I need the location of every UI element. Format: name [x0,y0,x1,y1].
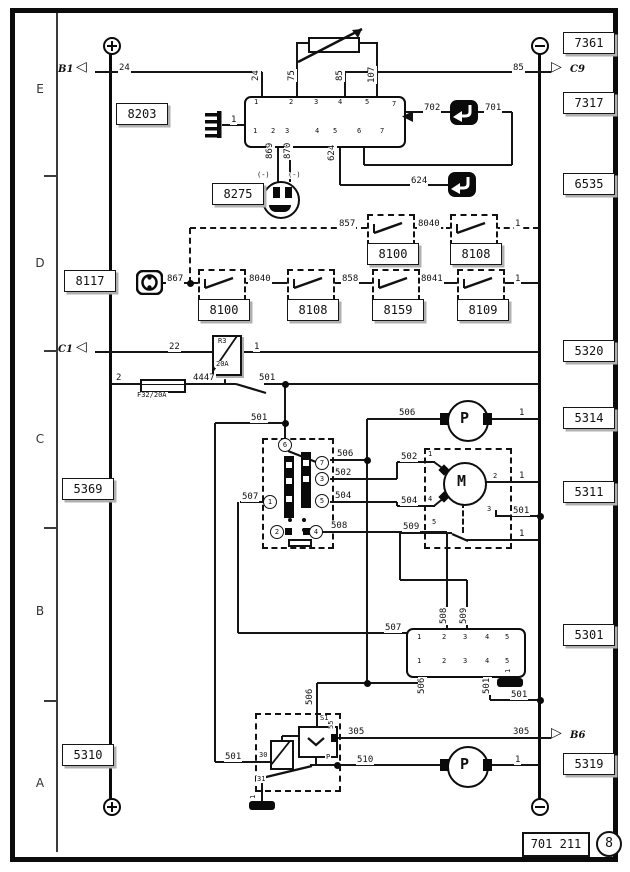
wire-label: 502 [334,469,352,478]
wire [340,184,448,186]
wire-label: 506 [336,450,354,459]
wire-label: 8040 [248,275,272,284]
component-ref-box: 5369 [62,478,114,500]
pump-terminal [440,759,449,771]
component-ref-box: 7361 [563,32,615,54]
pin-number: 4 [309,525,323,539]
ground-comb-icon [204,110,222,144]
pin-number: 1 [263,495,277,509]
wire-label: 30 [258,752,268,759]
pump-terminal [483,759,492,771]
wire-label: 2 [492,473,498,480]
wire-label: 1 [416,634,422,641]
device-8275-terminal [273,187,280,198]
device-8275-terminal [285,187,292,198]
wire [316,683,318,713]
wire-label: 702 [423,104,441,113]
wire-label: 508 [330,522,348,531]
wire-label: 3 [462,634,468,641]
margin-row-letter: B [32,604,48,618]
wire-label: 1 [514,756,521,765]
wire-label: 85 [512,64,525,73]
wire-label: 1 [518,530,525,539]
wire-label: 501 [258,374,276,383]
wire [396,502,398,506]
margin-row-letter: E [32,82,48,96]
wire-junction [282,381,289,388]
wire-junction [364,457,371,464]
wire-label: 22 [168,343,181,352]
offpage-arrow-label: C1 [58,345,73,355]
wire-label: 5 [504,658,510,665]
bus-terminal-minus-icon [531,798,549,816]
margin-row-letter: A [32,776,48,790]
component-ref-box: 5311 [563,481,615,503]
wire [367,418,448,420]
wire-label: 867 [166,275,184,284]
wire-label: M [456,474,467,489]
wire-label: 8041 [420,275,444,284]
bus-terminal-plus-icon [103,798,121,816]
right-ground-bus [538,52,541,800]
wire-label: 509 [460,607,469,625]
wire-label: 5 [504,634,510,641]
wire-label: 24 [118,64,131,73]
wire-label: 506 [418,677,427,695]
rheostat-icon [308,37,360,53]
wire [511,112,513,165]
wire-junction [187,280,194,287]
crossref-arrow-icon [450,100,478,129]
wire-label: 1 [514,275,521,284]
component-ref-box: 8108 [287,299,339,321]
wire-label: 507 [384,624,402,633]
component-ref-box: 5301 [563,624,615,646]
wire [182,383,236,385]
wire-label: 3 [284,128,290,135]
pin-number: 3 [315,472,329,486]
offpage-arrow-label: C9 [570,65,585,75]
margin-tick [44,527,57,529]
wire-label: 4 [484,658,490,665]
switch-contact [285,528,292,535]
instrument-icon [136,270,163,299]
margin-tick [44,175,57,177]
wire-label: 5 [332,128,338,135]
relay-r3-name: R3 [217,338,227,345]
component-ref-box: 6535 [563,173,615,195]
wire [214,423,216,762]
switch-symbol-8109 [457,269,505,301]
sheet-number-circle: 8 [596,831,622,857]
component-ref-box: 5310 [62,744,114,766]
dashed-wire [189,228,191,283]
wire [396,462,398,479]
wire [485,764,539,766]
wire-label: 870 [284,142,293,160]
wire-label: 501 [512,507,530,516]
wire [95,351,212,353]
wire-label: 624 [328,144,337,162]
wire-label: 31 [256,776,266,783]
wire-label: 2 [441,634,447,641]
margin-row-letter: D [32,256,48,270]
crossref-arrow-icon [448,172,476,201]
component-ref-box: 5319 [563,753,615,775]
pump-terminal [483,413,492,425]
component-ref-box: 8100 [367,243,419,265]
wire [330,459,367,461]
wire [238,632,407,634]
wire-label: 8040 [417,220,441,229]
pump-terminal [440,413,449,425]
wire-label: 305 [347,728,365,737]
offpage-arrow-icon: ▷ [551,60,562,74]
wire-label: 1 [253,99,259,106]
wire-label: 24 [252,69,261,82]
wire [264,383,539,385]
wire-label: 7 [391,101,397,108]
switch-bottom-contact [288,539,312,547]
wire-label: 2 [288,99,294,106]
wire-label: 4 [314,128,320,135]
relay-output-terminal [331,734,338,742]
wire [399,533,401,580]
ground-icon [497,678,523,687]
component-ref-box: 5320 [563,340,615,362]
wire-label: 4 [427,496,433,503]
wire [317,682,425,684]
wire-label: 75 [288,69,297,82]
wire-label: 501 [224,753,242,762]
relay-electronic-module [298,726,338,758]
wire-junction [282,420,289,427]
device-8275-icon [262,181,300,219]
relay-coil-icon [270,740,294,770]
bus-terminal-plus-icon [103,37,121,55]
wire-label: 501 [250,414,268,423]
wire-label: P [459,411,470,426]
sheet-code-box: 701 211 [522,832,590,857]
wire-label: P [459,757,470,772]
left-ground-bus [109,52,112,800]
wire-label: 1 [505,668,512,674]
wire-label: 510 [356,756,374,765]
wire-label: 3 [462,658,468,665]
wire-label: 508 [440,607,449,625]
margin-tick [44,350,57,352]
margin-divider-line [56,13,58,852]
wire [364,164,512,166]
relay-r3-rating: 20A [215,361,230,368]
offpage-arrow-icon: ▷ [551,726,562,740]
switch-symbol-8108 [287,269,335,301]
wire [261,72,263,97]
wire-label: 502 [400,453,418,462]
wire-label: (-) [287,172,302,179]
component-ref-box: 8108 [450,243,502,265]
bus-terminal-minus-icon [531,37,549,55]
wire-label: P [325,754,331,761]
wire [284,384,286,440]
wire-label: 509 [402,523,420,532]
wire [111,383,140,385]
component-ref-box: 5314 [563,407,615,429]
wire [400,579,467,581]
wire-label: 501 [510,691,528,700]
wire-label: 4 [337,99,343,106]
switch-symbol-8100 [198,269,246,301]
wire-label: 504 [400,497,418,506]
pin-number: 2 [270,525,284,539]
wire-label: 5 [364,99,370,106]
wire-junction [537,513,544,520]
component-ref-box: 8203 [116,103,168,125]
wire-label: 55 [328,720,335,730]
wire-label: 506 [398,409,416,418]
wire-label: 85 [336,69,345,82]
wire-label: 501 [483,677,492,695]
component-ref-box: 8100 [198,299,250,321]
wire [334,737,552,739]
fusebox-connector [244,96,406,148]
wire-label: 1 [416,658,422,665]
switch-symbol-8108 [450,214,498,246]
wiring-diagram-sheet: R3 20A [0,0,630,872]
wire-label: 1 [252,128,258,135]
wire-label: 107 [368,66,377,84]
wire-label: 624 [410,177,428,186]
wire-arrowhead [402,107,414,126]
component-ref-box: 8109 [457,299,509,321]
component-ref-box: 7317 [563,92,615,114]
wire [339,143,341,185]
wire-junction [537,697,544,704]
wire-label: (-) [256,172,271,179]
wire-label: 2 [115,374,122,383]
wire-label: 858 [341,275,359,284]
offpage-arrow-icon: ◁ [76,60,87,74]
component-ref-box: 8159 [372,299,424,321]
pin-number: 5 [315,494,329,508]
offpage-arrow-label: B1 [58,65,73,75]
wire-label: 1 [250,794,257,800]
wire-label: 869 [266,142,275,160]
wire-label: 506 [306,688,315,706]
wire [485,418,539,420]
wire-label: 507 [241,493,259,502]
margin-tick [44,700,57,702]
wire [238,351,539,353]
wire-label: 4447 [192,374,216,383]
wire-label: 857 [338,220,356,229]
component-ref-box: 8117 [64,270,116,292]
wire-label: 7 [379,128,385,135]
wire-label: 1 [518,409,525,418]
wire-label: 3 [313,99,319,106]
wire-label: 2 [270,128,276,135]
wire-label: 1 [427,451,433,458]
ground-icon [249,801,275,810]
wire-label: 1 [253,343,260,352]
wire-label: 5 [431,519,437,526]
wire-label: 1 [514,220,521,229]
wire-label: 1 [230,116,237,125]
wire-label: 1 [518,472,525,481]
offpage-arrow-icon: ◁ [76,340,87,354]
wire [330,501,397,503]
pin-number: 7 [315,456,329,470]
offpage-arrow-label: B6 [570,731,585,741]
device-8275-base [269,205,291,212]
wire-label: 504 [334,492,352,501]
wire-label: 305 [512,728,530,737]
wire [237,502,239,633]
wire-label: 701 [484,104,502,113]
wire-label: 3 [486,506,492,513]
wire-junction [364,680,371,687]
switch-symbol-8100 [367,214,415,246]
wire-label: 6 [356,128,362,135]
pin-number: 6 [278,438,292,452]
wire-label: 2 [441,658,447,665]
margin-row-letter: C [32,432,48,446]
wire-label: F32/20A [136,392,168,399]
wire-label: 4 [484,634,490,641]
switch-symbol-8159 [372,269,420,301]
component-ref-box: 8275 [212,183,264,205]
wire [277,143,279,182]
wire [330,478,397,480]
